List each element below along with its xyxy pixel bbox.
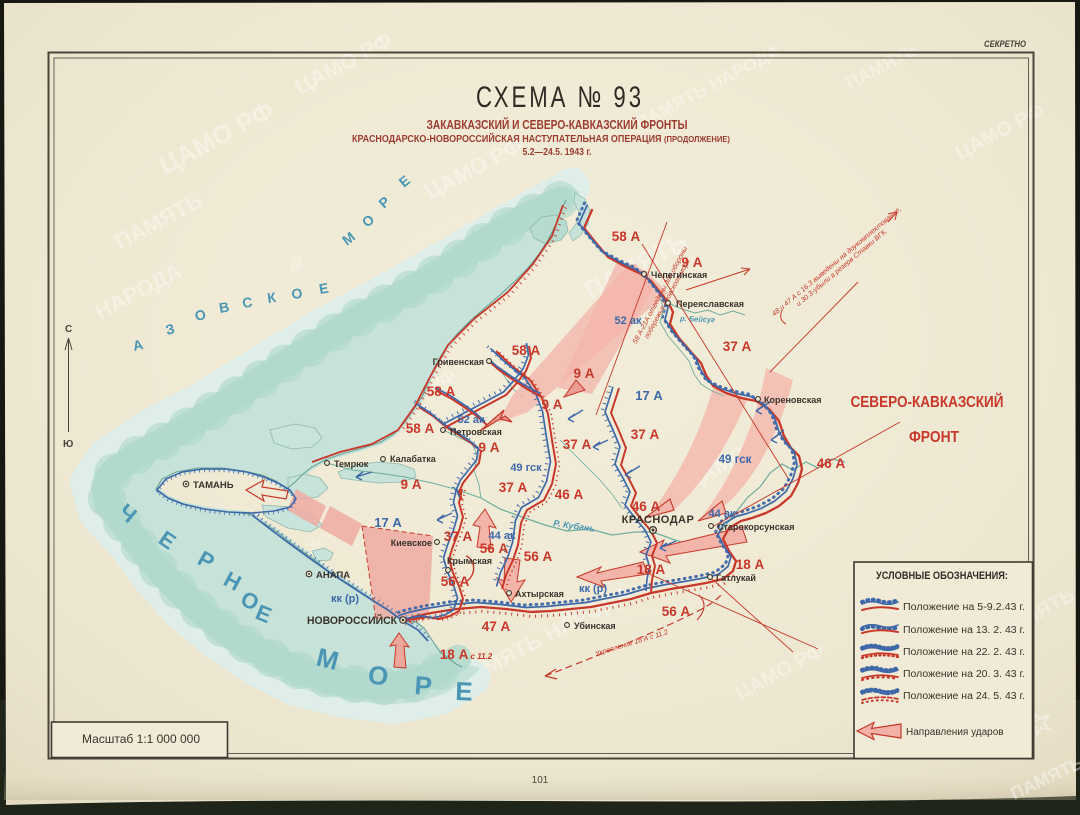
svg-text:ЗАКАВКАЗСКИЙ И СЕВЕРО-КАВКАЗ: ЗАКАВКАЗСКИЙ И СЕВЕРО-КАВКАЗСКИЙ ФРОНТЫ (427, 117, 688, 132)
svg-text:Положение на 24. 5. 43 г.: Положение на 24. 5. 43 г. (903, 691, 1025, 702)
svg-text:О: О (366, 659, 390, 692)
svg-text:Масштаб 1:1 000 000: Масштаб 1:1 000 000 (82, 732, 200, 746)
svg-text:44 ак: 44 ак (709, 508, 736, 520)
svg-text:9 А: 9 А (400, 477, 421, 492)
svg-text:Киевское: Киевское (391, 538, 432, 548)
svg-text:НОВОРОССИЙСК: НОВОРОССИЙСК (307, 614, 397, 627)
svg-text:56 А: 56 А (480, 541, 509, 556)
svg-text:СХЕМА № 93: СХЕМА № 93 (476, 81, 644, 114)
svg-text:КРАСНОДАРСКО-НОВОРОССИЙСКАЯ Н: КРАСНОДАРСКО-НОВОРОССИЙСКАЯ НАСТУПАТЕЛЬН… (352, 132, 730, 145)
svg-text:37 А: 37 А (563, 437, 592, 452)
svg-text:58 А: 58 А (406, 421, 435, 436)
svg-text:52 ак: 52 ак (615, 315, 642, 327)
svg-text:17 А: 17 А (635, 388, 663, 403)
svg-text:37 А: 37 А (723, 339, 752, 354)
svg-text:С: С (65, 324, 72, 335)
svg-text:58 А: 58 А (612, 229, 641, 244)
svg-text:СЕКРЕТНО: СЕКРЕТНО (984, 39, 1026, 50)
svg-text:Положение на 20. 3. 43 г.: Положение на 20. 3. 43 г. (903, 669, 1025, 680)
svg-text:Темрюк: Темрюк (334, 459, 369, 469)
svg-text:18 А: 18 А (736, 557, 765, 572)
svg-text:Старокорсунская: Старокорсунская (717, 522, 795, 532)
svg-text:58 А: 58 А (512, 343, 541, 358)
svg-text:46 А: 46 А (555, 487, 584, 502)
svg-text:Положение на 22. 2. 43 г.: Положение на 22. 2. 43 г. (903, 647, 1025, 658)
svg-text:49 гск: 49 гск (719, 454, 752, 466)
svg-text:Положение на 5-9.2.43 г.: Положение на 5-9.2.43 г. (903, 602, 1025, 613)
svg-text:Р: Р (414, 670, 433, 701)
svg-text:49 гск: 49 гск (510, 462, 542, 474)
svg-text:18 А: 18 А (637, 562, 666, 577)
svg-text:37 А: 37 А (631, 427, 660, 442)
svg-text:Калабатка: Калабатка (390, 454, 437, 464)
svg-text:АНАПА: АНАПА (316, 570, 350, 581)
svg-text:Петровская: Петровская (450, 427, 502, 437)
svg-text:37 А: 37 А (444, 529, 473, 544)
svg-text:ФРОНТ: ФРОНТ (909, 429, 959, 446)
svg-text:Крымская: Крымская (447, 556, 492, 566)
svg-text:Гривенская: Гривенская (433, 357, 484, 367)
svg-text:58 А: 58 А (427, 384, 456, 399)
svg-text:46 А: 46 А (632, 499, 661, 514)
svg-text:КРАСНОДАР: КРАСНОДАР (622, 514, 695, 526)
svg-text:УСЛОВНЫЕ ОБОЗНАЧЕНИЯ:: УСЛОВНЫЕ ОБОЗНАЧЕНИЯ: (876, 570, 1008, 582)
svg-text:52 ак: 52 ак (458, 414, 485, 426)
svg-text:кк (р): кк (р) (579, 583, 607, 595)
svg-text:Е: Е (455, 676, 473, 707)
svg-text:Переяславская: Переяславская (676, 299, 744, 309)
svg-text:кк (р): кк (р) (331, 593, 359, 605)
svg-text:Чепегинская: Чепегинская (651, 270, 707, 280)
svg-text:Кореновская: Кореновская (764, 395, 822, 405)
svg-text:О: О (291, 285, 304, 302)
svg-text:р. Бейсуг: р. Бейсуг (679, 314, 715, 324)
svg-text:5.2—24.5. 1943 г.: 5.2—24.5. 1943 г. (523, 147, 592, 158)
svg-text:СЕВЕРО-КАВКАЗСКИЙ: СЕВЕРО-КАВКАЗСКИЙ (851, 392, 1004, 411)
svg-text:Ахтырская: Ахтырская (515, 589, 564, 599)
svg-text:Ю: Ю (63, 439, 73, 450)
svg-text:44 ак: 44 ак (489, 530, 516, 542)
svg-text:9 А: 9 А (478, 440, 499, 455)
svg-text:9 А: 9 А (573, 366, 594, 381)
svg-text:9 А: 9 А (541, 397, 562, 412)
svg-text:17 А: 17 А (374, 515, 402, 530)
svg-text:56 А: 56 А (524, 549, 553, 564)
svg-text:Направления ударов: Направления ударов (906, 727, 1004, 738)
svg-text:Положение на 13. 2. 43 г.: Положение на 13. 2. 43 г. (903, 625, 1025, 636)
svg-text:56 А: 56 А (441, 574, 470, 589)
svg-text:37 А: 37 А (499, 480, 528, 495)
svg-text:47 А: 47 А (482, 619, 511, 634)
svg-text:Гатлукай: Гатлукай (716, 573, 756, 583)
svg-text:Убинская: Убинская (574, 621, 616, 631)
svg-text:56 А: 56 А (662, 604, 691, 619)
svg-text:101: 101 (532, 775, 549, 786)
svg-text:46 А: 46 А (817, 456, 846, 471)
svg-text:ТАМАНЬ: ТАМАНЬ (193, 480, 234, 491)
